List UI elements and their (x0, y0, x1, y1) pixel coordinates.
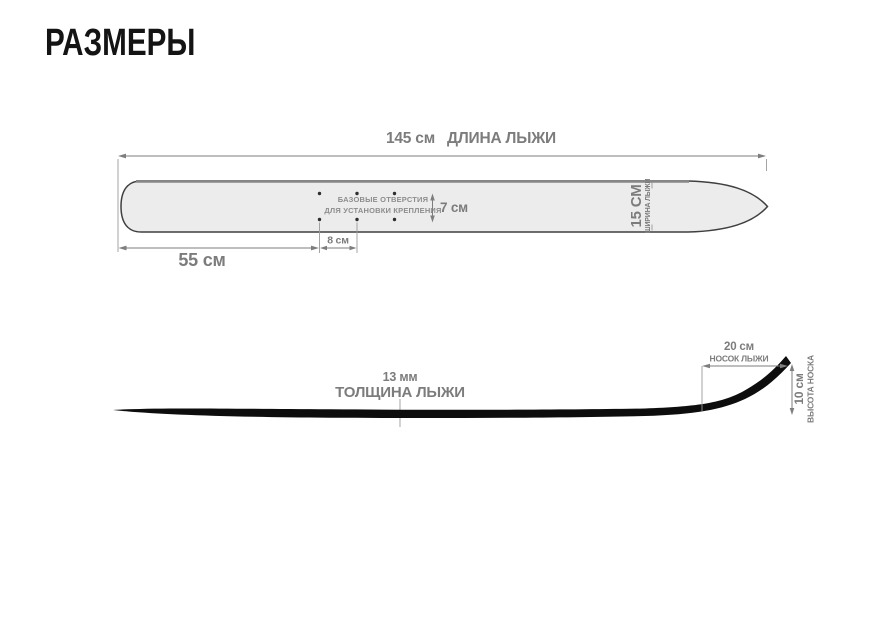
binding-hole (393, 218, 396, 221)
tip-height-label: ВЫСОТА НОСКА (806, 355, 816, 423)
top-view: 145 см ДЛИНА ЛЫЖИ БАЗОВЫЕ ОТВЕРСТИЯ ДЛЯ … (118, 130, 768, 270)
tip-height-value: 10 см (792, 373, 806, 405)
tip-length-value: 20 см (724, 341, 754, 353)
arrow-left-icon (118, 154, 126, 159)
width-value: 15 СМ (628, 185, 645, 228)
hole-spacing-value: 8 см (327, 235, 349, 247)
rows-gap-value: 7 см (440, 200, 468, 215)
arrow-left-icon (119, 246, 127, 251)
tip-height-dimension: 10 см ВЫСОТА НОСКА (790, 355, 816, 423)
thickness-value: 13 мм (383, 370, 418, 384)
side-view: 13 мм ТОЛЩИНА ЛЫЖИ 20 см НОСОК ЛЫЖИ 10 с… (113, 341, 816, 427)
tip-length-label: НОСОК ЛЫЖИ (710, 354, 769, 364)
binding-hole (318, 192, 321, 195)
holes-note-line2: ДЛЯ УСТАНОВКИ КРЕПЛЕНИЯ (324, 206, 441, 215)
tail-to-holes-value: 55 см (178, 250, 225, 270)
ski-dimensions-diagram: 145 см ДЛИНА ЛЫЖИ БАЗОВЫЕ ОТВЕРСТИЯ ДЛЯ … (0, 0, 875, 619)
width-label: ШИРИНА ЛЫЖИ (645, 178, 652, 233)
arrow-right-icon (311, 246, 319, 251)
width-dimension: 15 СМ ШИРИНА ЛЫЖИ (628, 178, 652, 233)
arrow-right-icon (350, 246, 357, 250)
arrow-right-icon (758, 154, 766, 159)
length-label: ДЛИНА ЛЫЖИ (447, 130, 556, 147)
hole-spacing-dimension: 8 см (320, 235, 357, 251)
arrow-left-icon (702, 364, 710, 368)
binding-hole (355, 218, 358, 221)
thickness-label: ТОЛЩИНА ЛЫЖИ (335, 384, 465, 401)
arrow-up-icon (790, 364, 795, 371)
holes-note-line1: БАЗОВЫЕ ОТВЕРСТИЯ (338, 195, 428, 204)
binding-hole (318, 218, 321, 221)
length-value: 145 см (386, 130, 435, 147)
arrow-down-icon (790, 408, 795, 415)
arrow-left-icon (320, 246, 327, 250)
